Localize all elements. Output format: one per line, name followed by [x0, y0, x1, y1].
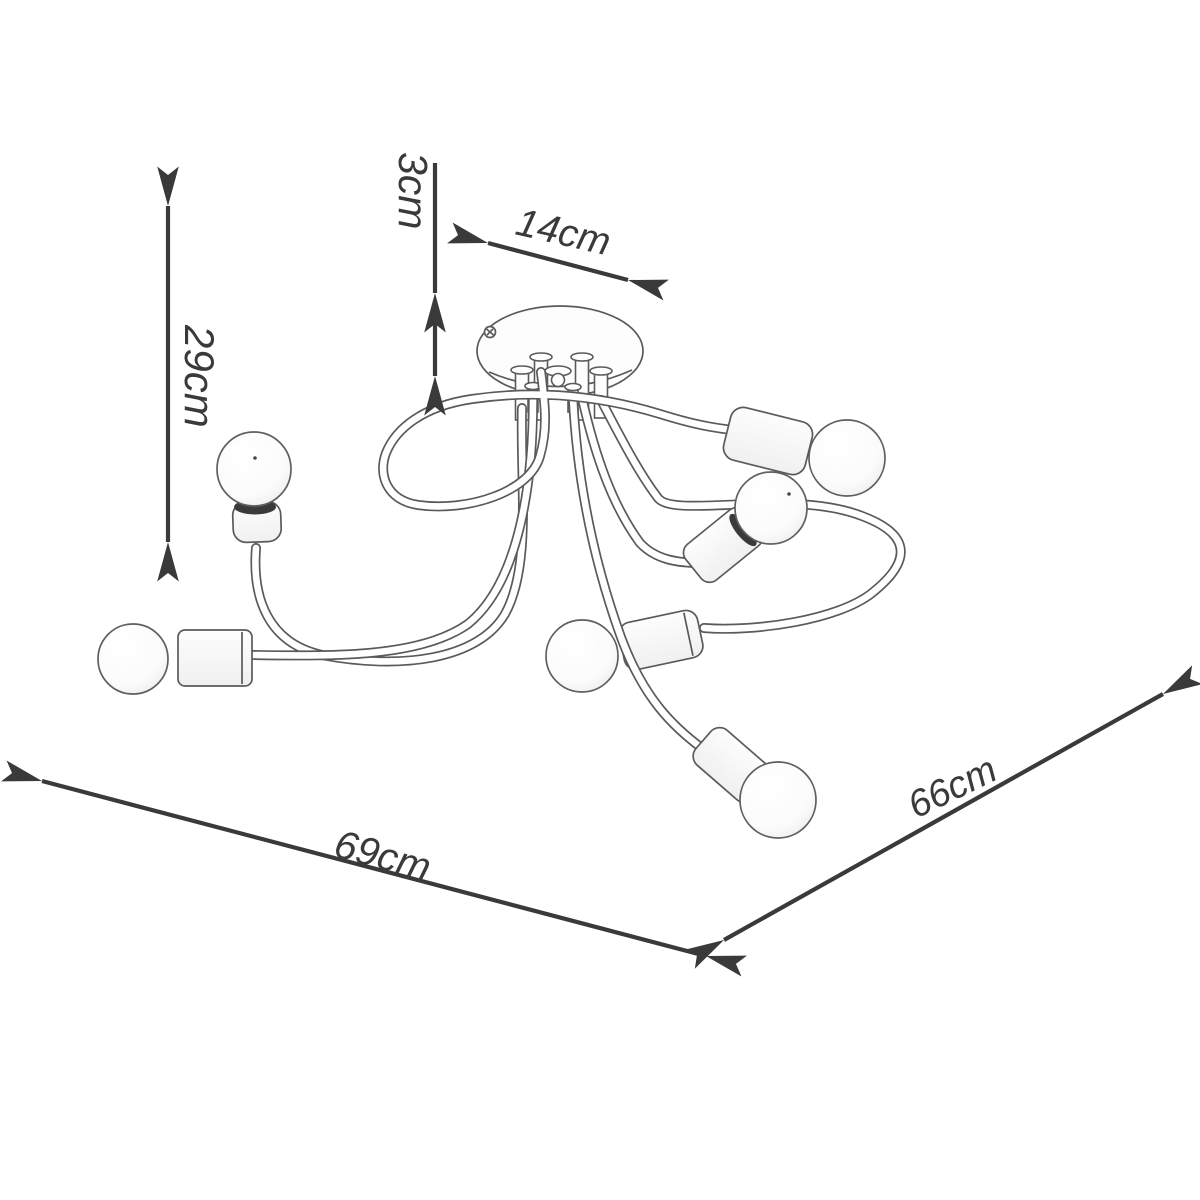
bulb-middle-right [679, 472, 807, 587]
bulb-glass [809, 420, 885, 496]
bulb-socket [178, 630, 252, 686]
dimension-canopy: 14cm [488, 201, 628, 280]
dimension-label-drop: 3cm [390, 152, 436, 229]
bulb-dot [253, 456, 257, 460]
lamp-dimension-diagram: 3cm 14cm 29cm 69cm 66cm [0, 0, 1200, 1200]
dimension-annotations: 3cm 14cm 29cm 69cm 66cm [42, 152, 1163, 956]
bulb-glass [740, 762, 816, 838]
diagram-page: 3cm 14cm 29cm 69cm 66cm [0, 0, 1200, 1200]
bulb-upper-left [217, 432, 291, 543]
bulb-lower-left [98, 624, 252, 694]
dimension-label-width: 69cm [330, 822, 436, 890]
dimension-label-depth: 66cm [902, 749, 1004, 827]
screw-icon [485, 327, 496, 338]
bulb-glass [546, 620, 618, 692]
bulb-glass [217, 432, 291, 506]
dimension-width: 69cm [42, 781, 706, 956]
dimension-height: 29cm [168, 206, 223, 542]
bulb-socket [721, 405, 816, 478]
bulb-glass [98, 624, 168, 694]
arm-loop-upper-right [383, 372, 741, 506]
dimension-drop: 3cm [390, 152, 436, 376]
bulb-dot [787, 492, 791, 496]
bulb-glass [735, 472, 807, 544]
bulb-bottom [688, 723, 816, 838]
dimension-label-height: 29cm [176, 324, 223, 428]
